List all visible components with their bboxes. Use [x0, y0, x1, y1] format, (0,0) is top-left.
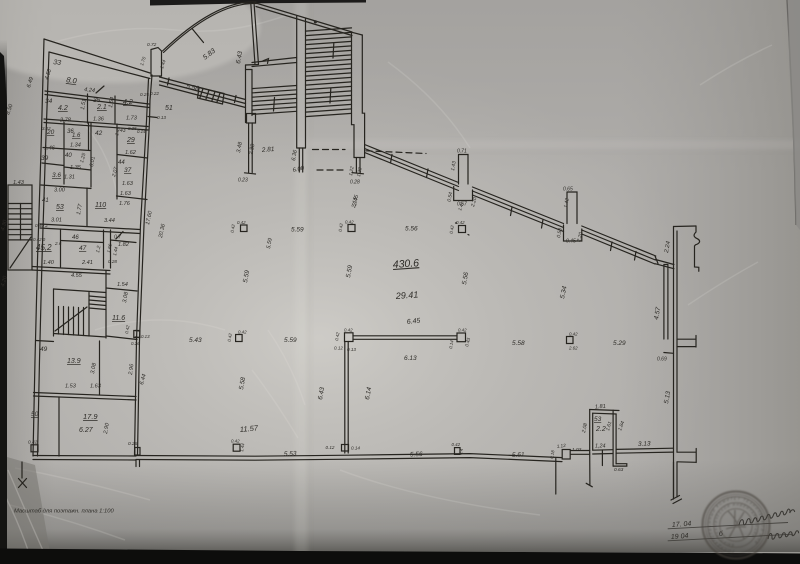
svg-text:51: 51 — [165, 105, 173, 112]
svg-text:2.41: 2.41 — [81, 260, 93, 266]
svg-text:13.9: 13.9 — [67, 358, 81, 365]
svg-text:29: 29 — [126, 137, 135, 144]
svg-text:3.00: 3.00 — [54, 188, 66, 194]
svg-text:6.45: 6.45 — [406, 318, 420, 326]
svg-text:0.72: 0.72 — [147, 42, 157, 48]
svg-text:49: 49 — [40, 346, 48, 353]
svg-text:1.43: 1.43 — [13, 180, 25, 186]
svg-text:50: 50 — [31, 411, 39, 418]
svg-text:1.46: 1.46 — [44, 146, 56, 152]
svg-text:0.14: 0.14 — [351, 446, 360, 451]
svg-text:4.2: 4.2 — [123, 99, 133, 106]
svg-text:0.28: 0.28 — [108, 259, 117, 264]
svg-text:0.28: 0.28 — [350, 180, 360, 186]
svg-text:5.53: 5.53 — [284, 450, 297, 458]
svg-text:1.54: 1.54 — [117, 282, 128, 288]
svg-text:44: 44 — [118, 160, 125, 166]
svg-text:0.42: 0.42 — [456, 220, 465, 225]
svg-text:0.42: 0.42 — [345, 220, 354, 225]
svg-text:47: 47 — [79, 245, 87, 252]
svg-text:3.6: 3.6 — [52, 172, 61, 179]
svg-text:0.22: 0.22 — [150, 91, 159, 96]
svg-text:1.82: 1.82 — [118, 242, 130, 248]
svg-text:0.12: 0.12 — [334, 346, 343, 351]
svg-text:53: 53 — [56, 204, 64, 211]
svg-text:5.59: 5.59 — [291, 227, 304, 234]
svg-text:1.62: 1.62 — [125, 150, 137, 156]
svg-text:5.58: 5.58 — [512, 340, 525, 347]
svg-text:0.23: 0.23 — [238, 178, 248, 184]
svg-text:0.42: 0.42 — [238, 330, 247, 335]
svg-text:34: 34 — [45, 98, 53, 105]
svg-text:35: 35 — [93, 97, 101, 104]
svg-text:Масштаб для поэтажн. плана 1:1: Масштаб для поэтажн. плана 1:100 — [14, 509, 114, 515]
svg-text:0.65: 0.65 — [563, 187, 573, 193]
svg-text:4.24: 4.24 — [84, 87, 95, 94]
svg-text:0.25: 0.25 — [140, 92, 149, 97]
svg-text:0.13: 0.13 — [141, 334, 150, 339]
svg-text:5.56: 5.56 — [405, 226, 418, 233]
svg-text:0.42: 0.42 — [28, 440, 38, 446]
svg-text:1.03: 1.03 — [572, 447, 582, 453]
svg-text:1.76: 1.76 — [119, 201, 131, 207]
svg-text:0.42: 0.42 — [237, 220, 246, 225]
svg-text:0.45: 0.45 — [566, 239, 576, 245]
svg-text:11.6: 11.6 — [112, 315, 125, 322]
svg-text:1.40: 1.40 — [43, 260, 55, 266]
svg-text:6.13: 6.13 — [404, 355, 417, 362]
svg-text:3.44: 3.44 — [104, 218, 115, 224]
svg-text:430.6: 430.6 — [392, 257, 419, 271]
svg-text:5.61: 5.61 — [512, 452, 525, 459]
svg-text:0.42: 0.42 — [452, 442, 461, 447]
svg-text:1.53: 1.53 — [65, 384, 77, 390]
svg-text:0.25: 0.25 — [128, 126, 137, 131]
svg-text:4.2: 4.2 — [58, 105, 68, 112]
svg-text:0.69: 0.69 — [657, 357, 667, 363]
svg-text:5.59: 5.59 — [284, 337, 297, 344]
svg-text:1.81: 1.81 — [595, 404, 606, 411]
svg-text:41: 41 — [42, 198, 49, 204]
svg-text:53: 53 — [594, 416, 602, 423]
svg-text:0.42 0: 0.42 0 — [33, 237, 46, 242]
svg-text:2.78: 2.78 — [59, 118, 72, 124]
svg-text:0.7: 0.7 — [114, 235, 121, 241]
svg-text:3.01: 3.01 — [51, 218, 62, 224]
svg-text:37: 37 — [124, 167, 132, 174]
svg-text:29.41: 29.41 — [394, 289, 418, 301]
svg-text:0.13: 0.13 — [157, 115, 166, 120]
svg-text:2.2: 2.2 — [595, 426, 606, 433]
svg-text:1.36: 1.36 — [93, 117, 105, 123]
svg-text:4.55: 4.55 — [71, 273, 83, 279]
svg-text:1.63: 1.63 — [120, 191, 132, 197]
svg-text:0.42: 0.42 — [231, 439, 240, 444]
svg-text:2.1: 2.1 — [96, 104, 107, 111]
svg-text:45,2: 45,2 — [36, 243, 52, 252]
svg-text:0.42: 0.42 — [569, 332, 578, 337]
svg-text:2.81: 2.81 — [261, 146, 276, 154]
svg-text:5.29: 5.29 — [613, 340, 626, 347]
svg-text:1.73: 1.73 — [126, 116, 138, 122]
svg-text:3.02: 3.02 — [42, 126, 51, 131]
svg-text:2.6: 2.6 — [54, 241, 62, 246]
svg-text:1.34: 1.34 — [70, 143, 81, 149]
svg-text:1.63: 1.63 — [122, 181, 134, 187]
svg-text:0.63: 0.63 — [614, 467, 624, 473]
svg-text:3.13: 3.13 — [638, 441, 651, 448]
svg-text:0.13: 0.13 — [347, 347, 356, 352]
svg-text:0.71: 0.71 — [457, 149, 467, 155]
svg-text:46: 46 — [72, 235, 79, 241]
svg-text:8.0: 8.0 — [66, 75, 78, 85]
svg-text:1.31: 1.31 — [64, 175, 75, 181]
svg-text:5.43: 5.43 — [189, 337, 202, 344]
svg-text:40: 40 — [65, 153, 72, 159]
svg-text:2.62: 2.62 — [568, 346, 578, 351]
svg-text:0.26: 0.26 — [128, 441, 138, 447]
svg-text:0.42: 0.42 — [458, 328, 467, 333]
svg-text:1.35: 1.35 — [70, 165, 82, 171]
svg-text:39: 39 — [41, 155, 49, 162]
svg-text:110: 110 — [95, 202, 106, 209]
svg-text:0.12: 0.12 — [326, 445, 335, 450]
svg-text:42: 42 — [95, 130, 103, 137]
svg-text:0.40 2: 0.40 2 — [35, 223, 48, 228]
svg-text:6.27: 6.27 — [79, 427, 94, 434]
svg-text:17.9: 17.9 — [83, 412, 98, 421]
svg-text:0.42: 0.42 — [344, 328, 353, 333]
svg-text:1.6: 1.6 — [72, 133, 81, 139]
svg-text:0.26: 0.26 — [131, 341, 140, 346]
svg-text:0.14: 0.14 — [137, 129, 146, 134]
svg-text:1,24: 1,24 — [595, 444, 606, 450]
svg-text:1.63: 1.63 — [90, 384, 102, 390]
svg-text:5.56: 5.56 — [410, 451, 423, 458]
svg-text:11.57: 11.57 — [239, 423, 259, 434]
svg-text:33: 33 — [53, 59, 62, 67]
